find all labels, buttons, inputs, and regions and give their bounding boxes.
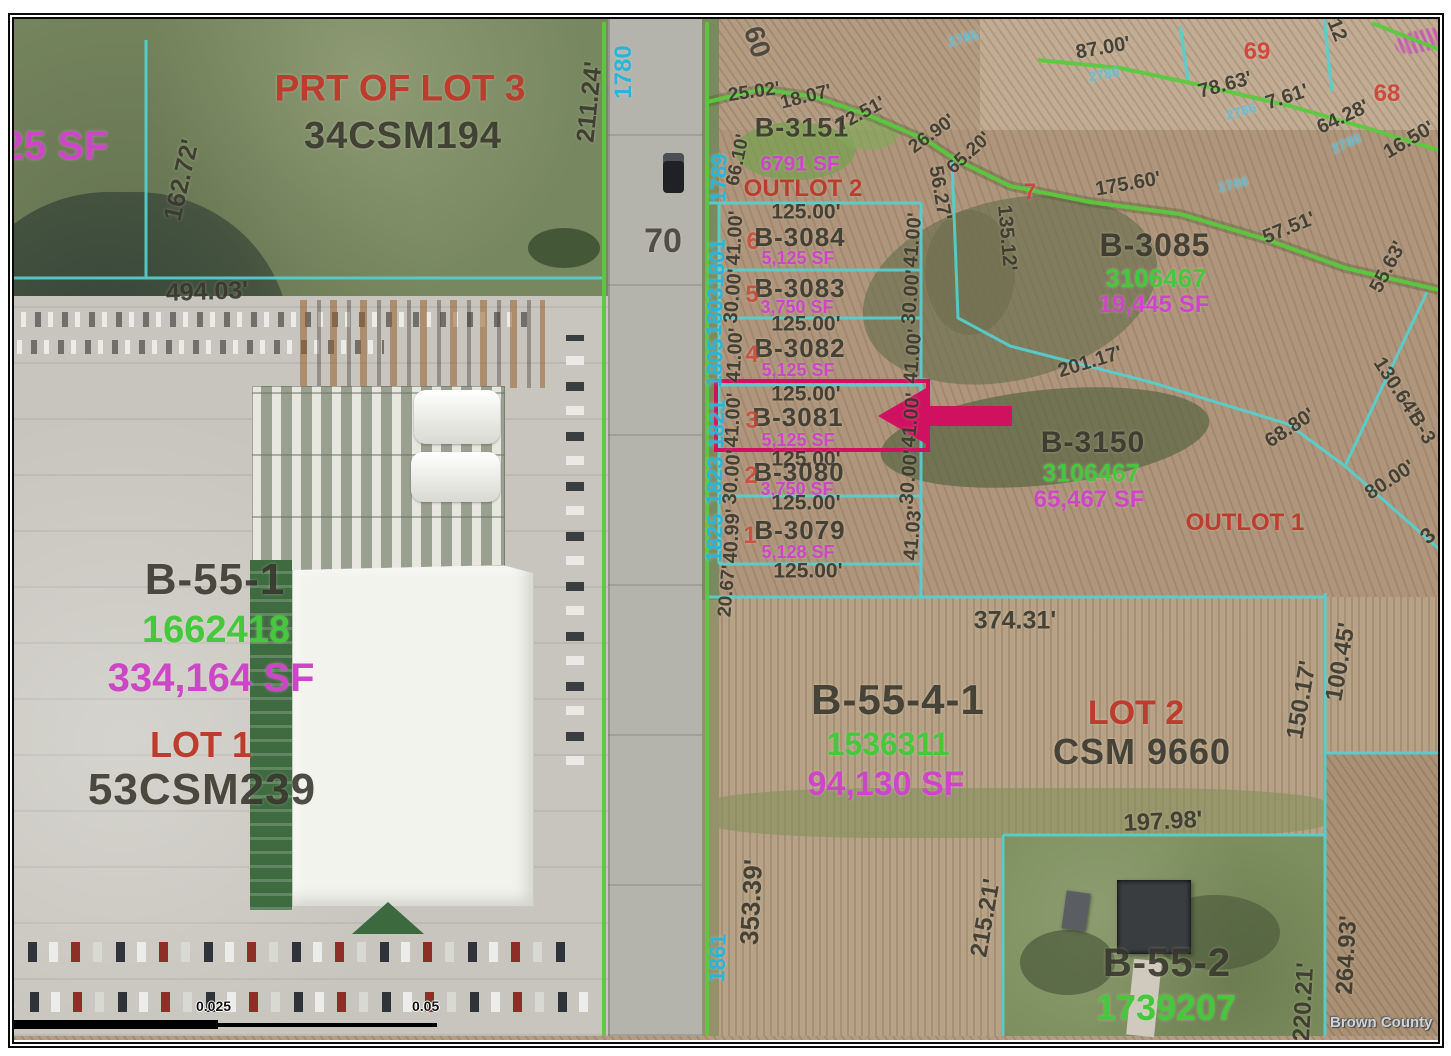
map-label: B-3081 xyxy=(752,404,843,430)
map-label: 1780 xyxy=(612,45,636,98)
margin-left xyxy=(0,0,8,1056)
map-label: B-3082 xyxy=(754,335,845,361)
map-label: 2786 xyxy=(1329,130,1363,155)
map-label: 5 xyxy=(745,283,758,307)
map-label: 56.27' xyxy=(925,164,954,221)
map-label: 41.00' xyxy=(899,392,924,448)
map-label: 80.00' xyxy=(1362,457,1419,504)
map-label: 125.00' xyxy=(771,314,840,335)
map-label: 68 xyxy=(1374,82,1401,106)
map-label: 130.64' xyxy=(1370,354,1423,420)
map-label: 55.63' xyxy=(1366,238,1409,296)
map-label: 65.20' xyxy=(943,129,994,178)
margin-top xyxy=(0,0,1451,13)
map-label: 3 xyxy=(1416,524,1438,549)
map-label: 5,125 SF xyxy=(761,249,834,267)
map-label: 2786 xyxy=(946,27,980,49)
map-label: B-3084 xyxy=(754,224,845,250)
map-label: 12 xyxy=(1324,19,1351,44)
county-watermark: Brown County xyxy=(1330,1014,1433,1031)
gis-map-page: 25 SFPRT OF LOT 334CSM194162.72'494.03'2… xyxy=(0,0,1451,1056)
map-label: B-3151 xyxy=(755,115,850,142)
map-label: B-55-2 xyxy=(1103,943,1231,983)
scale-tick-mid: 0.025 xyxy=(196,998,231,1014)
map-label: 135.12' xyxy=(994,204,1020,271)
map-label: 1662418 xyxy=(142,611,290,649)
map-label: 65,467 SF xyxy=(1034,488,1145,512)
map-label: 334,164 SF xyxy=(108,658,315,698)
map-label: 2786 xyxy=(1224,100,1258,122)
map-label: 25.02' xyxy=(727,79,781,105)
map-label: 2786 xyxy=(1087,64,1120,83)
scale-bar-segment-filled xyxy=(13,1020,218,1029)
map-label: 5,128 SF xyxy=(761,543,834,561)
map-label: 69 xyxy=(1244,40,1271,64)
map-label: 19,445 SF xyxy=(1099,293,1210,317)
map-label: 5,125 SF xyxy=(761,431,834,449)
map-label: 215.21' xyxy=(967,877,1004,959)
map-label: 175.60' xyxy=(1094,168,1162,199)
map-label: 3106467 xyxy=(1042,462,1139,487)
map-label: 1861 xyxy=(706,933,730,983)
map-label: 264.93' xyxy=(1333,915,1361,995)
map-label: 41.00' xyxy=(901,212,926,268)
map-label: 2786 xyxy=(1216,173,1250,194)
map-label: 30.00' xyxy=(899,269,924,325)
map-label: 18.07' xyxy=(778,81,833,112)
map-label: B-3150 xyxy=(1041,428,1145,458)
map-label: 1 xyxy=(743,524,756,548)
map-label: B-3085 xyxy=(1100,229,1211,261)
scale-tick-0: 0 xyxy=(13,998,14,1014)
map-label: 40.99' xyxy=(721,508,744,564)
map-label: 125.00' xyxy=(771,202,840,223)
map-label: 87.00' xyxy=(1074,33,1131,62)
map-label: 100.45' xyxy=(1322,621,1359,703)
map-label: PRT OF LOT 3 xyxy=(275,70,526,107)
map-label: 68.80' xyxy=(1262,405,1319,452)
map-world: 25 SFPRT OF LOT 334CSM194162.72'494.03'2… xyxy=(13,19,1438,1040)
map-label: 1739207 xyxy=(1096,990,1236,1026)
map-label: 125.00' xyxy=(773,561,842,582)
map-label: B-55-4-1 xyxy=(811,679,985,721)
map-label: LOT 2 xyxy=(1088,696,1184,730)
map-label: 3106467 xyxy=(1105,265,1206,291)
map-label: 5,125 SF xyxy=(761,361,834,379)
map-label: 30.00' xyxy=(721,268,746,324)
scale-bar-segment-line xyxy=(218,1023,437,1027)
map-label: 20.67' xyxy=(715,564,738,618)
map-label: 6791 SF xyxy=(760,154,839,175)
map-label: 70 xyxy=(644,224,682,258)
map-label: 220.21' xyxy=(1290,962,1318,1040)
map-label: 41.00' xyxy=(901,328,926,384)
map-label: 30.00' xyxy=(720,449,745,505)
map-label: B-3079 xyxy=(754,517,845,543)
map-label: 78.63' xyxy=(1196,68,1254,102)
map-label: LOT 1 xyxy=(150,727,252,763)
map-label: 1536311 xyxy=(827,728,950,760)
map-label: 94,130 SF xyxy=(808,767,965,801)
map-label: 41.00' xyxy=(722,392,745,448)
map-label: 60 xyxy=(739,23,775,61)
map-label: OUTLOT 2 xyxy=(744,177,863,201)
map-label: 34CSM194 xyxy=(304,117,502,155)
map-label: 353.39' xyxy=(736,859,766,946)
map-label: 2 xyxy=(744,464,757,488)
map-label: 25 SF xyxy=(13,126,108,166)
map-label: 197.98' xyxy=(1123,808,1203,836)
map-label: 16.50' xyxy=(1380,118,1437,163)
map-label: 64.28' xyxy=(1314,96,1372,137)
map-label: 494.03' xyxy=(165,278,248,306)
map-label: 201.17' xyxy=(1056,343,1125,381)
map-label: 53CSM239 xyxy=(88,768,316,812)
map-label: 150.17' xyxy=(1283,659,1320,741)
map-label: OUTLOT 1 xyxy=(1186,511,1305,535)
map-label: 41.03' xyxy=(901,505,926,561)
map-label: 41.00' xyxy=(724,210,747,266)
map-label: 57.51' xyxy=(1260,208,1318,247)
scale-bar: 0 0.025 0.05 xyxy=(13,998,460,1038)
map-label: 162.72' xyxy=(161,137,204,223)
scale-tick-max: 0.05 xyxy=(412,998,439,1014)
margin-right xyxy=(1444,0,1451,1056)
margin-bottom xyxy=(0,1048,1451,1056)
map-label: 3 xyxy=(745,409,758,433)
map-label: 41.00' xyxy=(724,327,747,383)
map-label: B-3 xyxy=(1405,408,1438,449)
map-label: 26.90' xyxy=(905,111,958,157)
map-label: 30.00' xyxy=(897,449,922,505)
map-labels-layer: 25 SFPRT OF LOT 334CSM194162.72'494.03'2… xyxy=(13,19,1438,1040)
map-label: 4 xyxy=(745,343,758,367)
map-label: 211.24' xyxy=(573,60,606,143)
map-label: CSM 9660 xyxy=(1053,734,1231,770)
map-label: B-55-1 xyxy=(145,558,286,602)
map-label: 125.00' xyxy=(771,493,840,514)
map-label: 374.31' xyxy=(974,609,1056,634)
map-label: 7 xyxy=(1024,181,1036,203)
map-viewport[interactable]: 25 SFPRT OF LOT 334CSM194162.72'494.03'2… xyxy=(13,19,1438,1040)
map-label: 7.61' xyxy=(1263,81,1311,114)
